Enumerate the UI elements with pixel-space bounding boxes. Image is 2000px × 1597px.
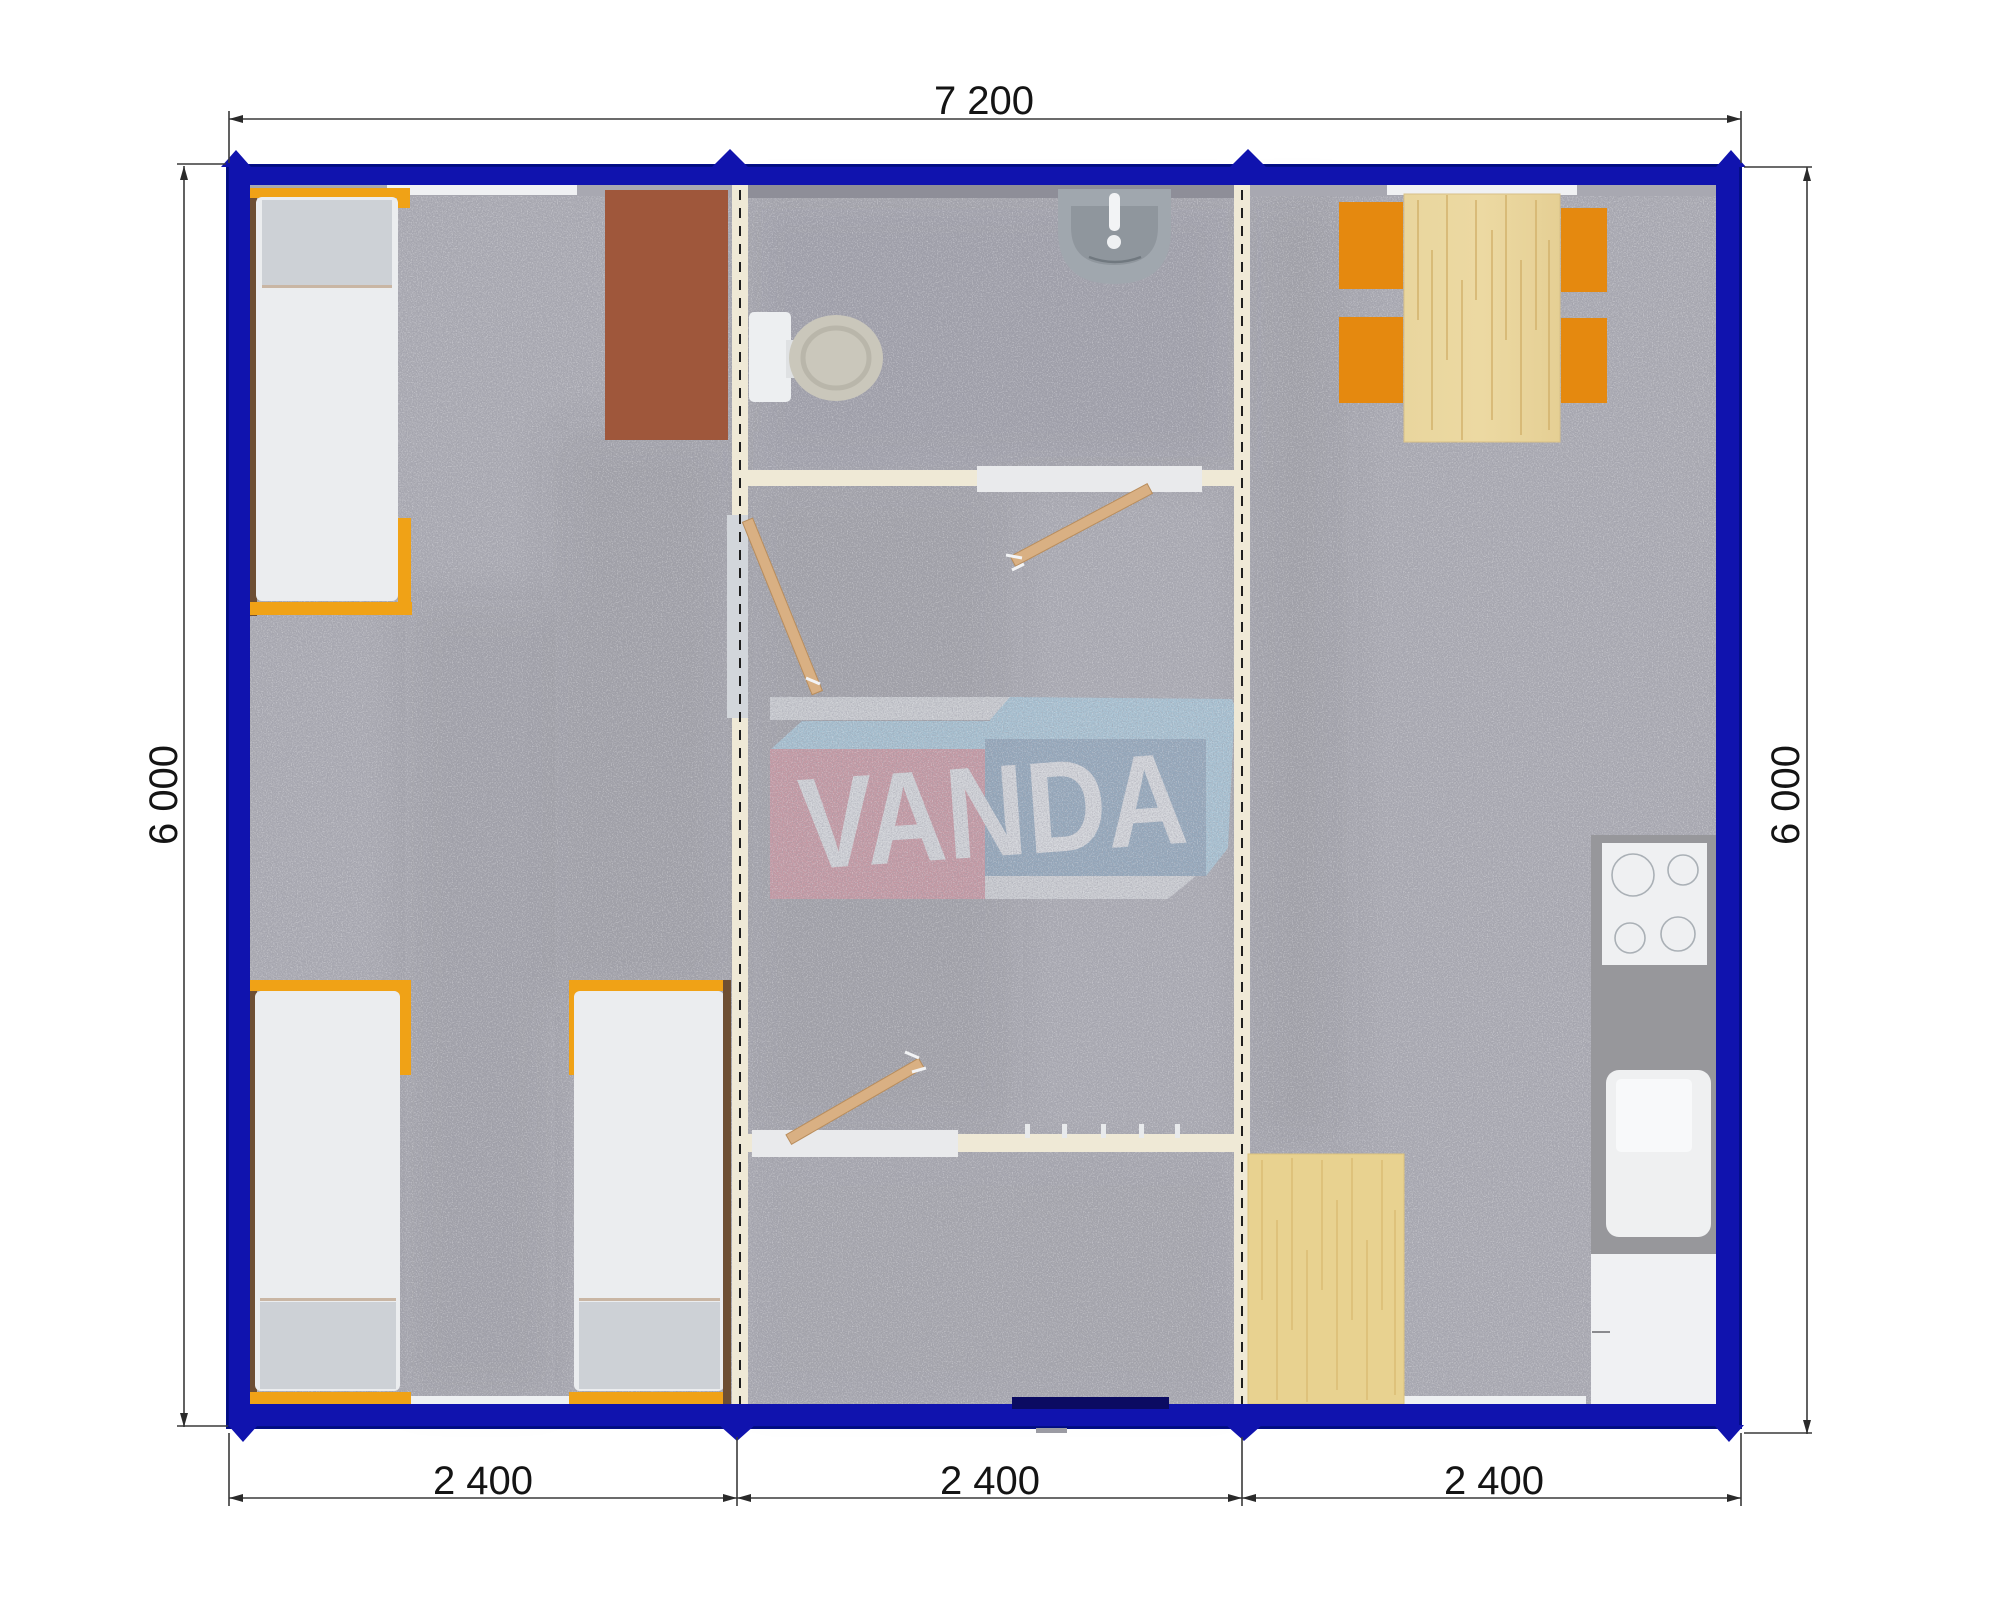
- svg-text:7 200: 7 200: [934, 79, 1034, 123]
- svg-text:6 000: 6 000: [142, 745, 186, 845]
- svg-text:2 400: 2 400: [940, 1459, 1040, 1503]
- svg-text:2 400: 2 400: [433, 1459, 533, 1503]
- svg-text:6 000: 6 000: [1764, 745, 1808, 845]
- svg-text:2 400: 2 400: [1444, 1459, 1544, 1503]
